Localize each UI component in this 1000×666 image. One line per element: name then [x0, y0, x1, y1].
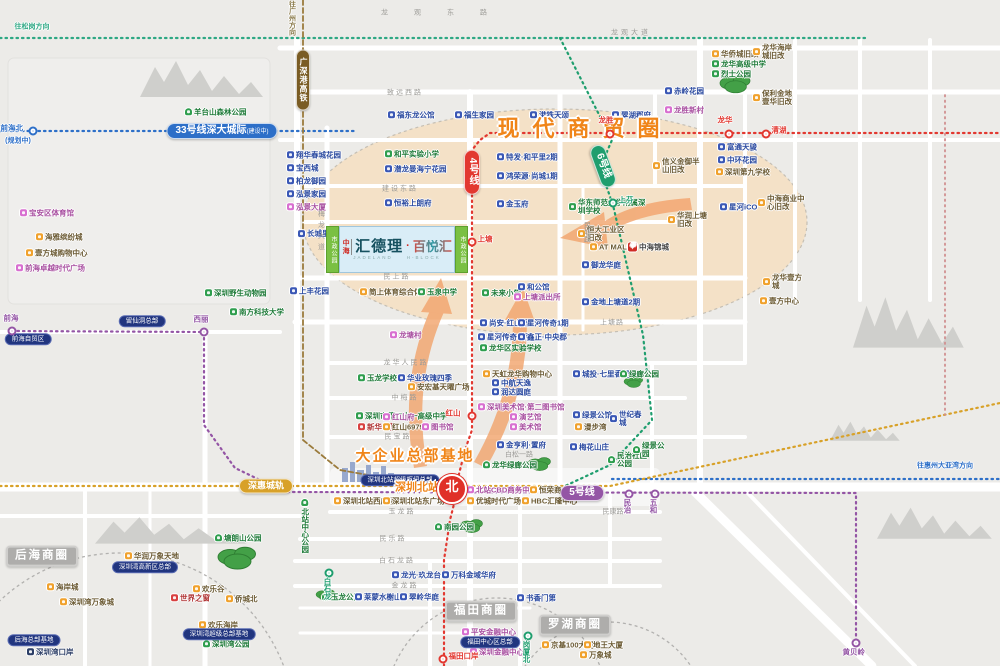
- map-poi: 前海卓越时代广场: [16, 264, 85, 272]
- poi-icon: [193, 586, 200, 593]
- poi-label: 世界之窗: [180, 594, 210, 602]
- poi-label: AT MALL: [599, 243, 631, 251]
- map-poi: 深圳湾万象城: [60, 598, 114, 606]
- map-poi: 龙华绿廊公园: [483, 461, 537, 469]
- poi-icon: [570, 444, 577, 451]
- poi-label: 润达圆庭: [501, 388, 531, 396]
- poi-label: 书香门第: [526, 594, 556, 602]
- metro-station: 前海: [8, 327, 17, 336]
- map-poi: 玉泉中学: [418, 288, 457, 296]
- shenzhen-project-map[interactable]: 翔华春城花园宝西城柏龙御园泓景家园泓景大厦长城里程家园上丰花园和平实验小学潜龙曼…: [0, 0, 1000, 666]
- station-dot-icon: [443, 659, 444, 660]
- metro-line-badge: 深惠城轨: [239, 479, 293, 494]
- poi-icon: [478, 404, 485, 411]
- project-latin2: H-BLOCK: [407, 256, 441, 261]
- poi-label: 华润上塘旧改: [677, 212, 709, 228]
- poi-icon: [522, 498, 529, 505]
- poi-label: 福东龙公馆: [397, 111, 435, 119]
- metro-line-note: (建设中): [247, 129, 269, 135]
- poi-icon: [60, 599, 67, 606]
- poi-icon: [47, 584, 54, 591]
- station-dot-icon: [856, 643, 857, 644]
- poi-label: 深圳野生动物园: [214, 289, 267, 297]
- poi-icon: [590, 244, 597, 251]
- poi-label: 柏龙御园: [296, 177, 326, 185]
- metro-line-name: 深惠城轨: [248, 481, 284, 491]
- poi-label: 地王大厦: [593, 641, 623, 649]
- direction-label: 往广州方向: [289, 1, 296, 36]
- poi-icon: [573, 371, 580, 378]
- road-label: 梅龙大道: [318, 210, 325, 254]
- poi-label: 侨城北: [235, 595, 258, 603]
- map-poi: 宝西城: [287, 164, 319, 172]
- poi-label: 深圳湾口岸: [36, 648, 74, 656]
- metro-station: 上芬: [609, 199, 618, 208]
- project-name: 汇德理: [355, 239, 403, 254]
- poi-label: 御龙华庭: [591, 261, 621, 269]
- station-label: 上芬: [619, 197, 634, 205]
- metro-station: 龙胜: [606, 130, 615, 139]
- metro-line-badge: 广深港高铁: [296, 50, 310, 111]
- map-poi: 深圳美术馆·第二图书馆: [478, 403, 565, 411]
- map-poi: 世界之窗: [171, 594, 210, 602]
- poi-label: 恒裕上朗府: [394, 199, 432, 207]
- park-icon: [608, 457, 615, 464]
- poi-label: 上丰花园: [299, 287, 329, 295]
- station-label: 五和: [650, 499, 658, 514]
- road-label: 上塘路: [600, 320, 624, 327]
- map-poi: 优城时代广场: [467, 497, 521, 505]
- poi-label: 玉龙学校: [367, 374, 397, 382]
- municipal-park-strip-left: 市政公园: [326, 226, 339, 273]
- poi-label: 美术馆: [519, 423, 542, 431]
- poi-icon: [355, 594, 362, 601]
- poi-label: 红山府: [392, 413, 415, 421]
- poi-icon: [385, 200, 392, 207]
- map-poi: 华侨城旧改: [712, 50, 759, 58]
- poi-icon: [226, 596, 233, 603]
- map-poi: 深圳野生动物园: [205, 289, 267, 297]
- poi-label: 图书馆: [431, 423, 454, 431]
- poi-icon: [497, 154, 504, 161]
- poi-label: 龙华区实验学校: [489, 344, 542, 352]
- park-icon: [620, 371, 627, 378]
- poi-label: 福生家园: [464, 111, 494, 119]
- poi-icon: [392, 572, 399, 579]
- poi-icon: [480, 320, 487, 327]
- map-poi: 红山6979: [383, 423, 424, 431]
- map-poi: 特发·和平里2期: [497, 153, 558, 161]
- metro-station: 白石龙: [325, 569, 334, 578]
- map-poi: 简上体育综合体: [360, 288, 422, 296]
- map-poi: 泓景家园: [287, 190, 326, 198]
- station-dot-icon: [472, 242, 473, 243]
- poi-icon: [171, 595, 178, 602]
- metro-line-badge: 4号线: [464, 150, 480, 195]
- poi-label: 鑫正·中央郡: [527, 333, 567, 341]
- poi-icon: [497, 442, 504, 449]
- poi-label: 中海锦城: [639, 243, 669, 251]
- area-title: 现代商贸圈: [497, 118, 672, 140]
- project-logo-block: 市政公园 中海 汇德理 · 百悦汇 JADELAND H-BLOCK 市政公园: [326, 226, 468, 273]
- map-poi: 龙塘村: [390, 331, 422, 339]
- area-title: 大企业总部基地: [355, 449, 474, 464]
- poi-label: 上塘派出所: [523, 293, 561, 301]
- poi-label: 壹方城购物中心: [35, 249, 88, 257]
- map-poi: AT MALL: [590, 243, 631, 251]
- poi-label: 中航天逸: [501, 379, 531, 387]
- poi-icon: [712, 71, 719, 78]
- station-label: 白石龙: [324, 578, 332, 601]
- station-dot-icon: [629, 494, 630, 495]
- station-label: 前海: [4, 315, 19, 323]
- map-poi: 金地上塘道2期: [582, 298, 640, 306]
- poi-label: 演艺馆: [519, 413, 542, 421]
- road-label: 民上路: [384, 274, 411, 281]
- poi-icon: [358, 375, 365, 382]
- map-poi: 柏龙御园: [287, 177, 326, 185]
- poi-label: 烈士公园: [721, 70, 751, 78]
- poi-icon: [518, 320, 525, 327]
- poi-label: 红山6979: [392, 423, 424, 431]
- map-poi: 图书馆: [422, 423, 454, 431]
- map-poi: 天虹龙华购物中心: [483, 370, 552, 378]
- poi-label: 梅花山庄: [579, 443, 609, 451]
- map-poi: 鑫正·中央郡: [518, 333, 567, 341]
- road-label: 龙观大道: [611, 30, 651, 37]
- map-poi: 星河传奇1期: [518, 319, 569, 327]
- project-latin: JADELAND: [353, 256, 393, 261]
- station-dot-icon: [12, 331, 13, 332]
- poi-icon: [573, 412, 580, 419]
- poi-label: 深圳美术馆·第二图书馆: [487, 403, 565, 411]
- map-poi: 深圳湾口岸: [27, 648, 74, 656]
- station-dot-icon: [610, 134, 611, 135]
- metro-station: 前海北: [29, 127, 38, 136]
- poi-icon: [334, 498, 341, 505]
- poi-label: 莱蒙水榭山: [364, 593, 402, 601]
- poi-icon: [385, 166, 392, 173]
- poi-label: 南方科技大学: [239, 308, 284, 316]
- poi-icon: [287, 204, 294, 211]
- poi-label: 深圳第九学校: [725, 168, 770, 176]
- poi-label: 翔华春城花园: [296, 151, 341, 159]
- map-poi: 富通天骏: [718, 143, 757, 151]
- metro-station: 福田口岸: [439, 655, 448, 664]
- poi-icon: [287, 191, 294, 198]
- metro-station: 黄贝岭: [852, 639, 861, 648]
- poi-icon: [358, 424, 365, 431]
- map-poi: 绿景公馆: [573, 411, 612, 419]
- map-poi: 宝安区体育馆: [20, 209, 74, 217]
- poi-icon: [492, 389, 499, 396]
- poi-label: 龙华绿廊公园: [492, 461, 537, 469]
- poi-label: 欢乐谷: [202, 585, 225, 593]
- map-poi: 上丰花园: [290, 287, 329, 295]
- map-poi: 平安金融中心: [462, 628, 516, 636]
- poi-icon: [483, 371, 490, 378]
- district-label: 福田商圈: [445, 601, 517, 622]
- poi-label: 万象城: [589, 651, 612, 659]
- poi-icon: [530, 487, 537, 494]
- poi-label: 恒大工业区旧改: [587, 226, 631, 242]
- poi-label: 星河iCO: [729, 203, 757, 211]
- metro-line-name: 5号线: [569, 487, 595, 498]
- poi-icon: [360, 289, 367, 296]
- poi-label: 华润万象天地: [134, 552, 179, 560]
- map-poi: 塘朗山公园: [215, 534, 262, 542]
- metro-line-badge: 33号线深大城际(建设中): [166, 123, 277, 139]
- poi-icon: [36, 234, 43, 241]
- map-poi: 润达圆庭: [492, 388, 531, 396]
- road-label: 民康路: [603, 509, 624, 516]
- map-poi: 烈士公园: [712, 70, 751, 78]
- road-label: 建设东路: [382, 186, 418, 193]
- park-icon: [435, 524, 442, 531]
- station-dot-icon: [729, 134, 730, 135]
- poi-label: 金地上塘道2期: [591, 298, 640, 306]
- map-poi: 中海商业中心旧改: [758, 195, 811, 211]
- station-dot-icon: [33, 131, 34, 132]
- poi-label: 绿景公馆: [582, 411, 612, 419]
- north-station-logo: 北: [437, 474, 467, 504]
- station-label: 黄贝岭: [843, 649, 866, 657]
- poi-icon: [442, 572, 449, 579]
- map-poi: 龙光·玖龙台: [392, 571, 441, 579]
- park-icon: [215, 535, 222, 542]
- poi-label: 平安金融中心: [471, 628, 516, 636]
- poi-icon: [712, 61, 719, 68]
- poi-label: 中海商业中心旧改: [767, 195, 811, 211]
- poi-label: 龙华壹方城: [772, 274, 808, 290]
- poi-icon: [753, 49, 760, 56]
- map-poi: 深圳湾公园: [203, 640, 250, 648]
- direction-label: 往松岗方向: [15, 24, 50, 31]
- poi-icon: [716, 169, 723, 176]
- park-icon: [203, 641, 210, 648]
- poi-label: 龙胜新村: [674, 106, 704, 114]
- poi-icon: [492, 380, 499, 387]
- poi-label: 华业玫瑰四季: [407, 374, 452, 382]
- metro-station: 民治: [625, 490, 634, 499]
- poi-icon: [517, 595, 524, 602]
- map-poi: 海岸城: [47, 583, 79, 591]
- direction-label: (规划中): [5, 138, 31, 145]
- poi-icon: [298, 231, 305, 238]
- map-poi: 莱蒙水榭山: [355, 593, 402, 601]
- poi-icon: [665, 88, 672, 95]
- park-icon: [483, 462, 490, 469]
- map-poi: 世纪春城: [610, 411, 645, 427]
- map-poi: 龙华高级中学: [712, 60, 766, 68]
- map-poi: 星河iCO: [720, 203, 757, 211]
- poi-label: 深圳北站东广场: [392, 497, 445, 505]
- road-label: 金龙路: [392, 583, 419, 590]
- map-poi: 和公馆: [518, 283, 550, 291]
- hq-badge: 福田中心区总部: [460, 636, 520, 648]
- poi-icon: [205, 290, 212, 297]
- poi-icon: [26, 250, 33, 257]
- poi-label: 深圳湾万象城: [69, 598, 114, 606]
- map-poi: 龙华海岸城旧改: [753, 44, 796, 60]
- poi-icon: [287, 165, 294, 172]
- station-label: 红山: [446, 410, 461, 418]
- poi-label: 壹方中心: [769, 297, 799, 305]
- area-title: 深圳北站: [395, 483, 439, 494]
- map-poi: 玉龙学校: [358, 374, 397, 382]
- hq-badge: 后海总部基地: [8, 634, 61, 646]
- map-poi: 羊台山森林公园: [185, 108, 247, 116]
- map-poi: 万象城: [580, 651, 612, 659]
- poi-icon: [665, 107, 672, 114]
- park-icon: [633, 447, 640, 454]
- brand-logo: 中海: [342, 239, 352, 255]
- poi-icon: [467, 487, 474, 494]
- map-poi: 南园公园: [435, 523, 474, 531]
- map-poi: 潜龙曼海宁花园: [385, 165, 447, 173]
- metro-station: 红山: [468, 412, 477, 421]
- poi-icon: [718, 144, 725, 151]
- poi-icon: [400, 594, 407, 601]
- map-poi: 美术馆: [510, 423, 542, 431]
- metro-station: 龙华: [725, 130, 734, 139]
- road-label: 民宝路: [385, 434, 412, 441]
- map-poi: 鸿荣源·尚城1期: [497, 172, 558, 180]
- metro-station: 上塘: [468, 238, 477, 247]
- station-label: 上塘: [478, 236, 493, 244]
- station-dot-icon: [329, 573, 330, 574]
- municipal-park-strip-right: 市政公园: [455, 226, 468, 273]
- poi-label: 泓景家园: [296, 190, 326, 198]
- poi-label: 金玉府: [506, 200, 529, 208]
- poi-label: 海雅缤纷城: [45, 233, 83, 241]
- map-poi: 万科金域华府: [442, 571, 496, 579]
- station-dot-icon: [528, 636, 529, 637]
- poi-label: 安宏基天曜广场: [417, 383, 470, 391]
- poi-label: 赤岭花园: [674, 87, 704, 95]
- hq-badge: 深圳湾超级总部基地: [183, 628, 256, 640]
- metro-line-name: 6号线: [594, 152, 613, 180]
- poi-icon: [287, 152, 294, 159]
- station-label: 龙胜: [599, 117, 614, 125]
- map-poi: 梅花山庄: [570, 443, 609, 451]
- poi-label: 和平实验小学: [394, 150, 439, 158]
- poi-icon: [518, 334, 525, 341]
- map-poi: 北站CBD商务中心: [467, 486, 537, 494]
- map-poi: 安宏基天曜广场: [408, 383, 470, 391]
- poi-icon: [610, 416, 617, 423]
- poi-icon: [480, 345, 487, 352]
- map-poi: 翔华春城花园: [287, 151, 341, 159]
- map-poi: 龙华区实验学校: [480, 344, 542, 352]
- poi-icon: [125, 553, 132, 560]
- poi-icon: [569, 204, 576, 211]
- poi-icon: [422, 424, 429, 431]
- poi-icon: [467, 498, 474, 505]
- poi-icon: [16, 265, 23, 272]
- poi-icon: [462, 629, 469, 636]
- road-label: 致远西路: [387, 90, 423, 97]
- metro-station: 清湖: [762, 130, 771, 139]
- map-poi: 中环花园: [718, 156, 757, 164]
- poi-icon: [418, 289, 425, 296]
- poi-label: 绿廊公园: [629, 370, 659, 378]
- station-label: 民治: [624, 499, 632, 514]
- map-poi: 金亨利·置府: [497, 441, 546, 449]
- poi-icon: [582, 299, 589, 306]
- poi-icon: [575, 424, 582, 431]
- poi-icon: [763, 279, 770, 286]
- road-label: 龙观东路: [381, 10, 513, 17]
- station-label: 龙华: [718, 117, 733, 125]
- poi-label: 海岸城: [56, 583, 79, 591]
- map-poi: 北站中心公园: [301, 499, 309, 553]
- road-label: 龙华人民路: [384, 360, 429, 367]
- poi-label: 潜龙曼海宁花园: [394, 165, 447, 173]
- map-poi: 华润万象天地: [125, 552, 179, 560]
- poi-icon: [518, 284, 525, 291]
- map-poi: 福生家园: [455, 111, 494, 119]
- poi-icon: [20, 210, 27, 217]
- map-poi: 赤岭花园: [665, 87, 704, 95]
- map-poi: 龙胜新村: [665, 106, 704, 114]
- road-label: 白松一路: [505, 452, 533, 459]
- hq-badge: 深圳湾高新区总部: [112, 561, 178, 573]
- poi-icon: [398, 375, 405, 382]
- poi-label: 龙华高级中学: [721, 60, 766, 68]
- poi-icon: [290, 288, 297, 295]
- map-poi: 金玉府: [497, 200, 529, 208]
- poi-label: 鸿荣源·尚城1期: [506, 172, 558, 180]
- poi-icon: [230, 309, 237, 316]
- poi-icon: [287, 178, 294, 185]
- poi-label: 金亨利·置府: [506, 441, 546, 449]
- station-label: 前海北: [1, 125, 24, 133]
- poi-icon: [514, 294, 521, 301]
- poi-label: 龙华海岸城旧改: [762, 44, 796, 60]
- poi-label: 和公馆: [527, 283, 550, 291]
- map-poi: 书香门第: [517, 594, 556, 602]
- poi-label: 龙塘村: [399, 331, 422, 339]
- poi-icon: [582, 262, 589, 269]
- road-label: 民乐路: [380, 536, 407, 543]
- district-label: 罗湖商圈: [539, 615, 611, 636]
- poi-label: 羊台山森林公园: [194, 108, 247, 116]
- map-poi: 南方科技大学: [230, 308, 284, 316]
- poi-label: 万科金域华府: [451, 571, 496, 579]
- metro-line-badge: 5号线: [560, 485, 604, 501]
- map-poi: 御龙华庭: [582, 261, 621, 269]
- poi-icon: [356, 413, 363, 420]
- project-subname: 百悦汇: [413, 240, 452, 253]
- map-poi: 演艺馆: [510, 413, 542, 421]
- poi-label: 前海卓越时代广场: [25, 264, 85, 272]
- map-poi: 绿廊公园: [620, 370, 659, 378]
- poi-label: 绿景公园: [642, 442, 668, 458]
- poi-icon: [27, 649, 34, 656]
- poi-label: 简上体育综合体: [369, 288, 422, 296]
- map-poi: 华润上塘旧改: [668, 212, 709, 228]
- poi-label: 南园公园: [444, 523, 474, 531]
- map-poi: 海雅缤纷城: [36, 233, 83, 241]
- metro-station: 五和: [651, 490, 660, 499]
- map-poi: 欢乐谷: [193, 585, 225, 593]
- poi-label: 宝安区体育馆: [29, 209, 74, 217]
- poi-label: 北站CBD商务中心: [476, 486, 537, 494]
- poi-icon: [383, 424, 390, 431]
- road-label: 民塘路: [584, 222, 591, 243]
- poi-label: 深圳金融中心: [479, 648, 524, 656]
